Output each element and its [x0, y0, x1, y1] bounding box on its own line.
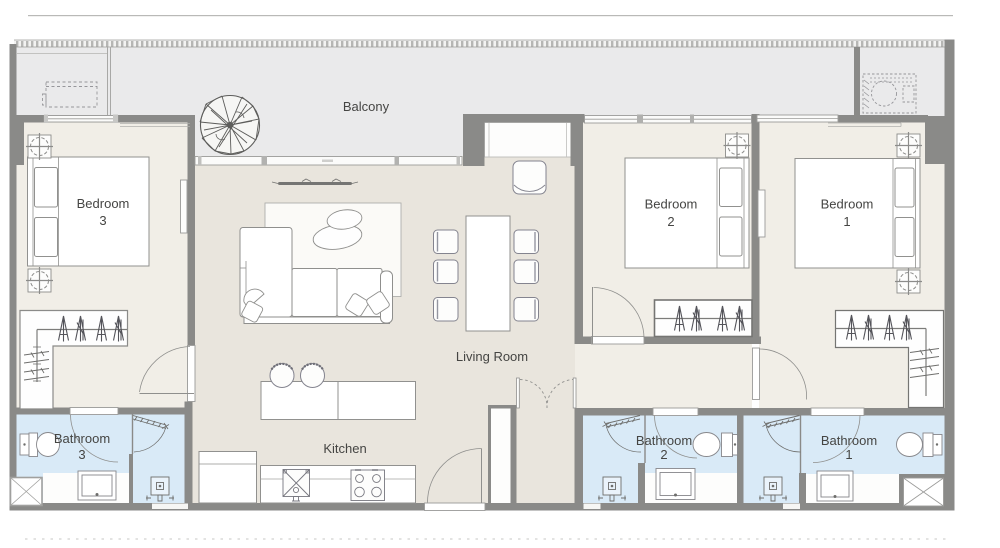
svg-text:Balcony: Balcony [343, 99, 390, 114]
svg-text:1: 1 [843, 214, 850, 229]
svg-text:1: 1 [845, 447, 852, 462]
svg-text:Bathroom: Bathroom [821, 433, 877, 448]
svg-text:Bedroom: Bedroom [645, 197, 698, 212]
svg-text:Bathroom: Bathroom [54, 431, 110, 446]
svg-text:Living Room: Living Room [456, 349, 528, 364]
svg-text:2: 2 [660, 447, 667, 462]
svg-text:Bathroom: Bathroom [636, 433, 692, 448]
svg-text:Kitchen: Kitchen [323, 441, 366, 456]
svg-text:Bedroom: Bedroom [821, 197, 874, 212]
svg-text:Bedroom: Bedroom [77, 196, 130, 211]
svg-text:3: 3 [78, 447, 85, 462]
svg-text:3: 3 [99, 213, 106, 228]
svg-text:2: 2 [667, 214, 674, 229]
